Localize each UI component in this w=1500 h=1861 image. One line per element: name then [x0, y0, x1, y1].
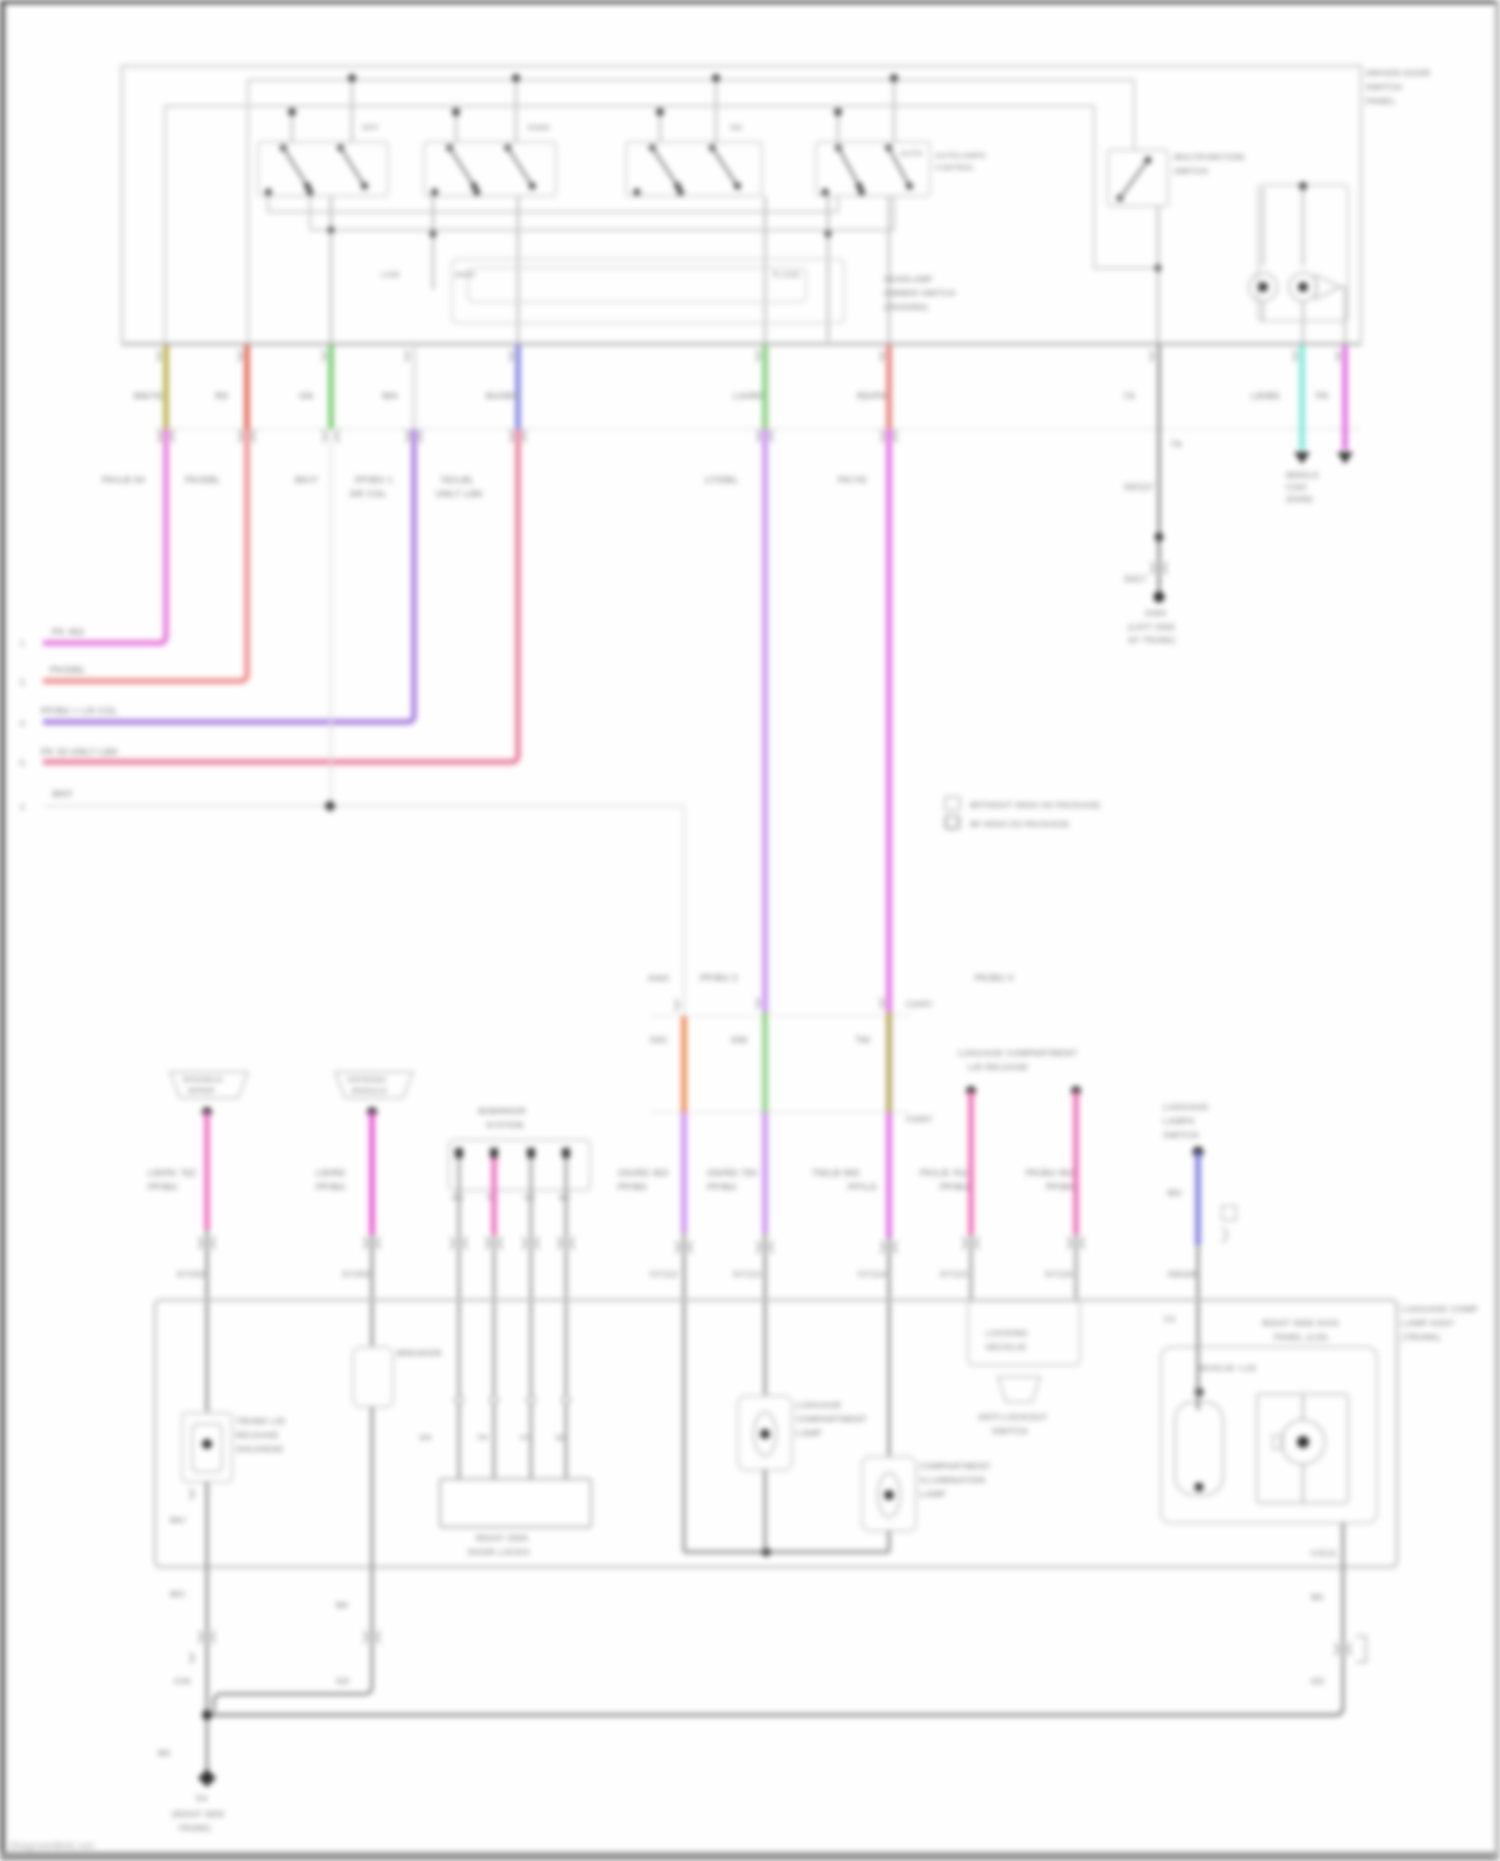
svg-text:PP/BU + LR COL: PP/BU + LR COL [41, 706, 118, 716]
svg-text:5: 5 [20, 759, 25, 768]
svg-text:GY116: GY116 [1045, 1269, 1073, 1279]
svg-text:GY115: GY115 [940, 1269, 968, 1279]
svg-text:PANEL: PANEL [1366, 96, 1396, 106]
svg-text:BK/: BK/ [170, 1589, 186, 1599]
svg-text:W/SHIELD: W/SHIELD [183, 1075, 223, 1084]
svg-text:HEADLAMP: HEADLAMP [884, 275, 933, 284]
svg-text:7A: 7A [1123, 391, 1135, 401]
svg-text:GY114: GY114 [858, 1269, 886, 1279]
svg-text:1: 1 [20, 639, 25, 648]
svg-text:TRUNK LID: TRUNK LID [236, 1416, 285, 1426]
svg-text:SWITCH: SWITCH [992, 1426, 1028, 1436]
svg-text:PP/BU: PP/BU [707, 1182, 737, 1192]
svg-text:RIGHT SIDE KICK: RIGHT SIDE KICK [1262, 1318, 1340, 1328]
svg-text:LID RELEASE: LID RELEASE [968, 1062, 1029, 1072]
svg-text:GD: GD [1311, 1676, 1325, 1686]
svg-text:PK/LB 761: PK/LB 761 [920, 1168, 968, 1178]
svg-text:GY: GY [520, 1433, 532, 1442]
svg-text:AUTO: AUTO [900, 149, 923, 158]
svg-text:AUTOLAMPS: AUTOLAMPS [935, 151, 986, 160]
svg-text:SOLENOID: SOLENOID [236, 1444, 284, 1454]
svg-text:CONTROL: CONTROL [935, 163, 975, 172]
svg-text:WITHOUT HIGH I/O PACKAGE: WITHOUT HIGH I/O PACKAGE [970, 800, 1101, 810]
svg-text:PARK: PARK [528, 123, 550, 132]
svg-text:ILLUMINATION: ILLUMINATION [920, 1475, 985, 1485]
svg-text:RD/PK: RD/PK [857, 391, 887, 401]
svg-text:GY202: GY202 [177, 1269, 205, 1279]
svg-text:C4: C4 [1164, 1315, 1175, 1324]
svg-text:PK 54 UNLT LBK: PK 54 UNLT LBK [41, 747, 119, 757]
svg-text:DR COL: DR COL [350, 489, 387, 499]
svg-text:MULTIFUNCTION: MULTIFUNCTION [1174, 153, 1244, 162]
svg-text:GN: GN [299, 391, 313, 401]
svg-text:SWITCH: SWITCH [1174, 167, 1208, 176]
svg-text:DOOR LOCKS: DOOR LOCKS [468, 1547, 530, 1557]
svg-text:PP/BU 2: PP/BU 2 [700, 973, 738, 983]
svg-text:2: 2 [20, 678, 25, 687]
svg-text:DiagramWeb.net: DiagramWeb.net [10, 1841, 95, 1852]
svg-text:SYSTEM: SYSTEM [486, 1120, 523, 1130]
svg-text:UNLT LBK: UNLT LBK [436, 489, 484, 499]
svg-text:PK/BU 962: PK/BU 962 [1026, 1168, 1075, 1178]
svg-text:G4: G4 [196, 1794, 208, 1803]
svg-text:LAMP ASSY: LAMP ASSY [1402, 1318, 1455, 1328]
svg-text:MIDDLE: MIDDLE [1286, 471, 1319, 480]
svg-text:C2057: C2057 [906, 1114, 933, 1124]
svg-text:PK: PK [478, 1433, 489, 1442]
svg-text:TRUNK): TRUNK) [178, 1824, 211, 1833]
svg-text:SWITCH: SWITCH [1366, 82, 1402, 92]
svg-text:(RIGHT SIDE: (RIGHT SIDE [172, 1810, 225, 1819]
svg-text:LB/PK 762: LB/PK 762 [148, 1168, 196, 1178]
svg-text:SWITCH: SWITCH [1163, 1130, 1199, 1140]
svg-text:PP/BU 1: PP/BU 1 [355, 475, 393, 485]
svg-text:RELEASE: RELEASE [236, 1430, 279, 1440]
svg-text:PK/BU 4: PK/BU 4 [975, 973, 1013, 983]
svg-text:PK/DBL: PK/DBL [185, 475, 221, 485]
svg-text:BK/Y: BK/Y [295, 475, 318, 485]
svg-text:LUGGAGE: LUGGAGE [796, 1400, 842, 1410]
svg-text:WIPER: WIPER [188, 1086, 215, 1095]
svg-text:OF TRUNK): OF TRUNK) [1128, 636, 1176, 645]
svg-text:(TRUNK): (TRUNK) [1402, 1332, 1440, 1342]
svg-text:LOW: LOW [381, 270, 400, 279]
svg-text:GY113: GY113 [733, 1269, 761, 1279]
svg-text:(D306): (D306) [1286, 495, 1313, 504]
svg-text:4: 4 [20, 719, 25, 728]
svg-text:BK/: BK/ [170, 1515, 186, 1525]
svg-text:MODULE: MODULE [352, 1086, 387, 1095]
svg-text:G400: G400 [1145, 609, 1166, 618]
svg-text:RIGHT SIDE: RIGHT SIDE [476, 1533, 529, 1543]
svg-text:YE/LBL: YE/LBL [440, 475, 475, 485]
svg-text:GY112: GY112 [650, 1269, 678, 1279]
svg-text:GD: GD [336, 1676, 350, 1686]
svg-text:S402: S402 [648, 973, 669, 983]
svg-text:PP/BK: PP/BK [1046, 1182, 1076, 1192]
svg-text:BU/WH: BU/WH [486, 391, 519, 401]
svg-text:LAMP: LAMP [796, 1428, 822, 1438]
svg-text:PP/BK: PP/BK [618, 1182, 648, 1192]
svg-text:LAMPS: LAMPS [1163, 1116, 1195, 1126]
svg-text:BU: BU [1168, 1188, 1182, 1198]
svg-text:DIMMER SWITCH: DIMMER SWITCH [884, 289, 955, 298]
svg-text:COMPARTMENT: COMPARTMENT [796, 1414, 867, 1424]
svg-text:W/ HIGH I/O PACKAGE: W/ HIGH I/O PACKAGE [970, 819, 1070, 829]
svg-text:C2057: C2057 [906, 999, 933, 1009]
svg-text:OFF: OFF [362, 123, 378, 132]
svg-text:HIGH: HIGH [455, 270, 475, 279]
svg-text:LAMP: LAMP [920, 1489, 946, 1499]
svg-text:BREAKER: BREAKER [397, 1348, 442, 1358]
svg-text:OG/RD 463: OG/RD 463 [618, 1168, 669, 1178]
svg-text:BK: BK [158, 1748, 172, 1758]
svg-text:LB/RD: LB/RD [316, 1168, 346, 1178]
svg-text:PANEL (LID): PANEL (LID) [1274, 1332, 1328, 1342]
svg-text:PP/BU: PP/BU [148, 1182, 178, 1192]
svg-text:RD: RD [215, 391, 229, 401]
svg-text:S417: S417 [1124, 574, 1147, 584]
svg-text:W/MIRROR: W/MIRROR [478, 1106, 526, 1116]
svg-text:TN/LB 960: TN/LB 960 [812, 1168, 860, 1178]
svg-text:FLASH: FLASH [773, 270, 800, 279]
svg-text:BK: BK [336, 1600, 350, 1610]
svg-text:BK: BK [556, 1433, 568, 1442]
svg-text:BN/YE: BN/YE [134, 391, 164, 401]
svg-text:PP/BU: PP/BU [316, 1182, 346, 1192]
svg-text:LOCKING: LOCKING [986, 1328, 1028, 1338]
svg-text:OG/: OG/ [650, 1035, 668, 1045]
svg-text:LUGGAGE: LUGGAGE [1163, 1102, 1209, 1112]
svg-text:GD117: GD117 [1124, 482, 1154, 492]
svg-text:GY202: GY202 [342, 1269, 370, 1279]
svg-text:ANTENNA: ANTENNA [347, 1075, 387, 1084]
svg-text:LUGGAGE COMPARTMENT: LUGGAGE COMPARTMENT [958, 1048, 1078, 1058]
svg-text:ANTI-LOCKOUT: ANTI-LOCKOUT [978, 1412, 1048, 1422]
svg-text:PK 462: PK 462 [52, 627, 84, 637]
svg-text:TN/: TN/ [855, 1035, 871, 1045]
svg-text:LG/RD: LG/RD [733, 391, 763, 401]
svg-text:GN/RD 760: GN/RD 760 [707, 1168, 757, 1178]
svg-text:(LEFT SIDE: (LEFT SIDE [1128, 623, 1176, 632]
svg-text:DECKLID: DECKLID [986, 1342, 1027, 1352]
svg-text:GN/: GN/ [731, 1035, 748, 1045]
svg-text:C320: C320 [1286, 483, 1307, 492]
svg-text:WH7: WH7 [52, 789, 73, 799]
svg-text:PK/YE: PK/YE [838, 475, 867, 485]
svg-text:BN: BN [420, 1433, 432, 1442]
svg-text:LB/BK: LB/BK [1251, 391, 1281, 401]
svg-text:(PASSING): (PASSING) [884, 303, 928, 312]
svg-text:LT/DBL: LT/DBL [705, 475, 739, 485]
svg-text:ON: ON [730, 123, 742, 132]
svg-text:COMPARTMENT: COMPARTMENT [920, 1461, 991, 1471]
svg-text:3: 3 [20, 803, 25, 812]
svg-text:WH: WH [382, 391, 398, 401]
svg-text:PK/LB 54: PK/LB 54 [102, 475, 145, 485]
svg-text:BK: BK [1311, 1592, 1325, 1602]
svg-text:DECKLID / LID: DECKLID / LID [1196, 1364, 1256, 1373]
svg-text:7A: 7A [1170, 439, 1182, 449]
svg-text:GD116: GD116 [1168, 1269, 1196, 1279]
svg-text:PP/LG: PP/LG [848, 1182, 877, 1192]
svg-text:PK: PK [1316, 391, 1329, 401]
svg-text:C44: C44 [174, 1676, 191, 1686]
svg-text:LUGGAGE COMP: LUGGAGE COMP [1402, 1304, 1478, 1314]
svg-text:PK/DBL: PK/DBL [50, 665, 86, 675]
svg-text:C4111: C4111 [1311, 1548, 1337, 1558]
svg-text:DRIVER DOOR: DRIVER DOOR [1366, 68, 1430, 78]
svg-text:PP/BU: PP/BU [940, 1182, 970, 1192]
